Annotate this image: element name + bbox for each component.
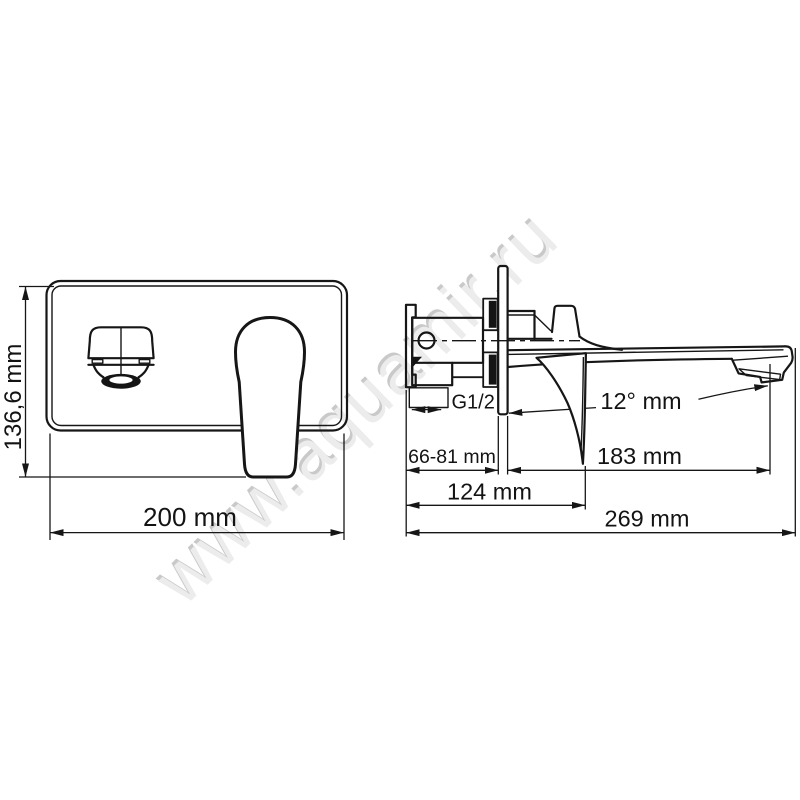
dim-handle: 124 mm xyxy=(406,479,585,506)
side-sleeves xyxy=(483,299,497,387)
side-handle-blade xyxy=(537,353,586,464)
technical-drawing: www.aquamir.ru www.aquamir.ru 136,6 mm xyxy=(0,0,800,800)
dim-spout: 183 mm xyxy=(508,443,770,470)
drawing-page: www.aquamir.ru www.aquamir.ru 136,6 mm xyxy=(0,0,800,800)
dim-depth-label: 66-81 mm xyxy=(408,446,496,468)
angle-arc-arrow xyxy=(699,386,768,400)
dim-width-label: 200 mm xyxy=(143,502,237,532)
dim-total-label: 269 mm xyxy=(605,506,690,532)
angle-label: 12° mm xyxy=(600,388,681,414)
dim-handle-label: 124 mm xyxy=(447,479,532,505)
dim-height-label: 136,6 mm xyxy=(0,344,27,451)
thread-label: G1/2 xyxy=(452,392,495,414)
front-aerator-hole xyxy=(109,376,132,383)
front-handle xyxy=(236,318,305,478)
dim-depth: 66-81 mm xyxy=(406,446,498,470)
angle-annotation: 12° mm xyxy=(600,386,767,414)
dim-spout-label: 183 mm xyxy=(597,443,682,469)
dim-total: 269 mm xyxy=(406,506,795,533)
cartridge-knob xyxy=(552,306,580,337)
front-spout xyxy=(88,327,153,388)
